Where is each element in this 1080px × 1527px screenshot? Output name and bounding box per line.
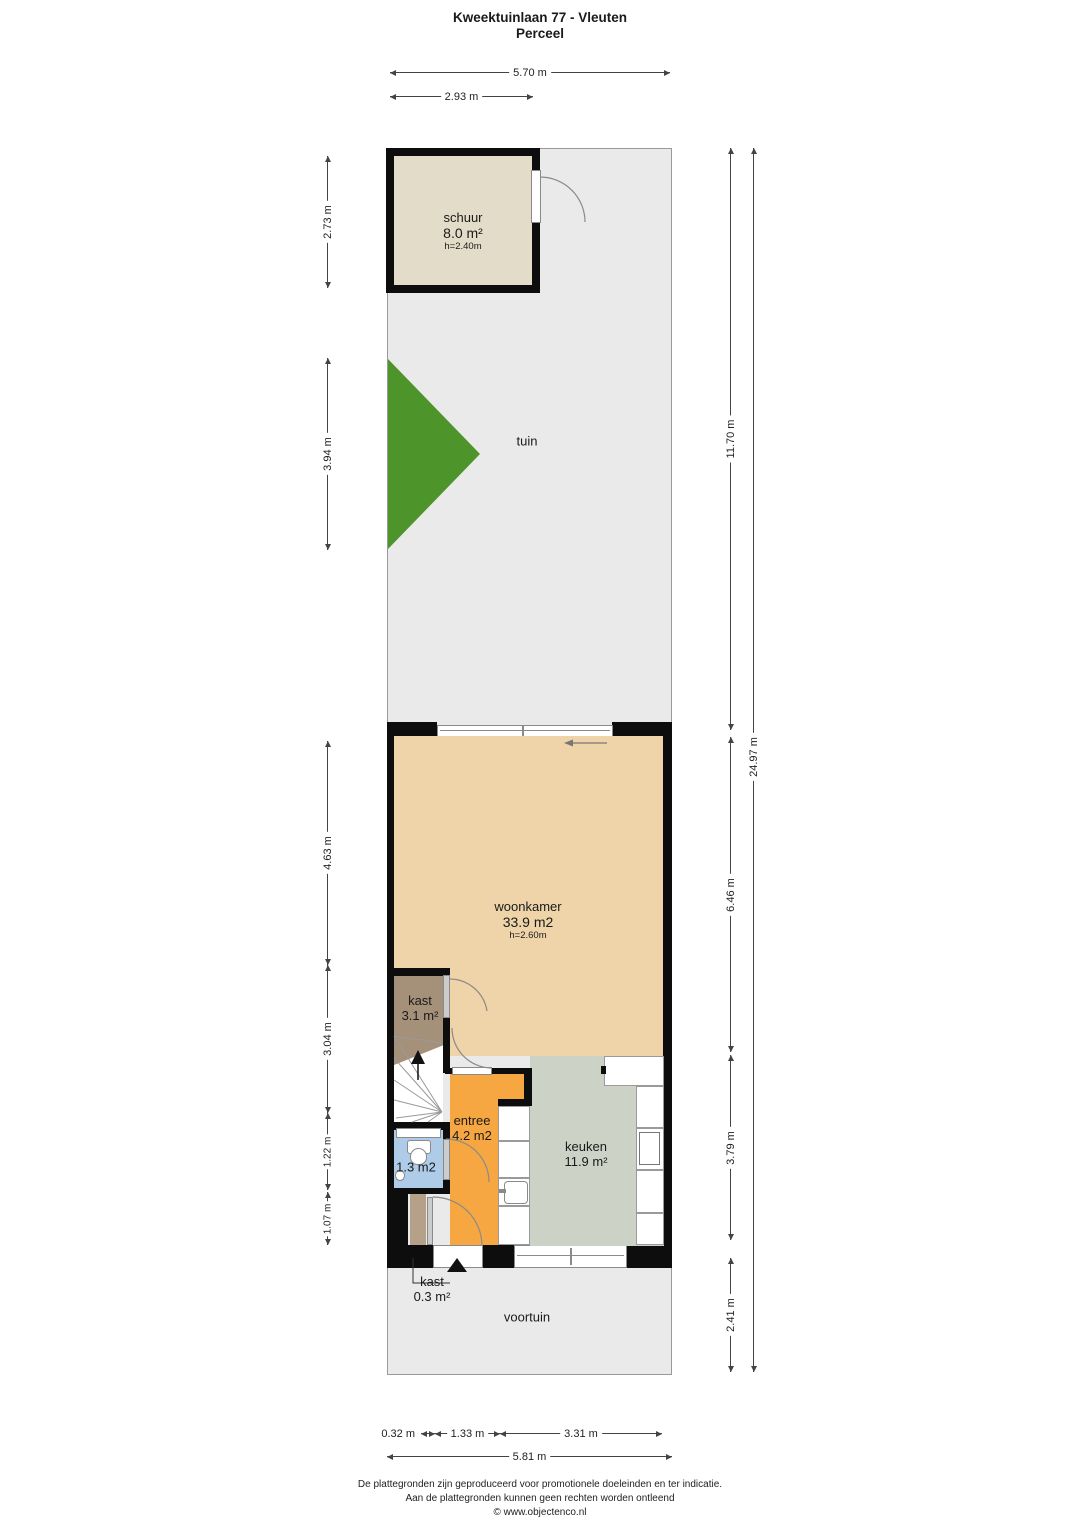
kitchen-counter-right-4 <box>636 1213 664 1245</box>
dim-left-304: 3.04 m <box>327 965 328 1113</box>
schuur-wall-top <box>386 148 540 156</box>
schuur-wall-left <box>386 148 394 293</box>
kast-onder-label: kast 0.3 m² <box>414 1274 451 1304</box>
kast-onder-floor <box>410 1194 426 1245</box>
front-door-opening <box>433 1245 483 1268</box>
kast-boven-door-opening <box>443 975 450 1018</box>
entree-area: 4.2 m2 <box>452 1128 492 1143</box>
dim-top-570: 5.70 m <box>390 72 670 73</box>
dim-right-2497: 24.97 m <box>753 148 754 1372</box>
kitchen-counter-left-3 <box>498 1206 530 1245</box>
footer-line-2: Aan de plattegronden kunnen geen rechten… <box>0 1492 1080 1506</box>
floor-plan-page: Kweektuinlaan 77 - Vleuten Perceel <box>0 0 1080 1527</box>
toilet-wall-right-b <box>443 1180 450 1194</box>
kitchen-window-post <box>570 1248 572 1265</box>
entree-label: entree 4.2 m2 <box>452 1113 492 1143</box>
woonkamer-height: h=2.60m <box>494 930 561 941</box>
sink-icon <box>504 1181 528 1204</box>
house-wall-bottom-left <box>387 1245 433 1268</box>
dim-right-241: 2.41 m <box>730 1258 731 1372</box>
entree-keuken-wall-horiz <box>498 1099 532 1106</box>
keuken-label: keuken 11.9 m² <box>564 1139 607 1169</box>
dim-top-293: 2.93 m <box>390 96 533 97</box>
kitchen-counter-left-1 <box>498 1106 530 1141</box>
dim-right-1170: 11.70 m <box>730 148 731 730</box>
dim-bottom-032: 0.32 m <box>421 1433 435 1434</box>
woonkamer-area: 33.9 m2 <box>494 914 561 930</box>
kast-boven-label: kast 3.1 m² <box>402 993 439 1023</box>
tuin-label: tuin <box>517 434 538 449</box>
schuur-height: h=2.40m <box>443 241 483 252</box>
dim-left-394: 3.94 m <box>327 358 328 550</box>
kitchen-counter-hinge <box>601 1066 606 1074</box>
dim-left-107: 1.07 m <box>327 1192 328 1245</box>
dim-bottom-581: 5.81 m <box>387 1456 672 1457</box>
sliding-door-rail <box>440 730 610 731</box>
toilet-door-opening <box>443 1139 450 1180</box>
kast-onder-name: kast <box>414 1274 451 1289</box>
footer-line-3: © www.objectenco.nl <box>0 1506 1080 1520</box>
entree-floor <box>450 1073 500 1245</box>
keuken-name: keuken <box>564 1139 607 1154</box>
footer-disclaimer: De plattegronden zijn geproduceerd voor … <box>0 1478 1080 1520</box>
kitchen-counter-right-3 <box>636 1170 664 1213</box>
toilet-area: 1.3 m2 <box>396 1160 436 1175</box>
page-title-address: Kweektuinlaan 77 - Vleuten <box>0 10 1080 26</box>
schuur-wall-bottom <box>386 285 540 293</box>
house-wall-right <box>663 722 672 1268</box>
schuur-name: schuur <box>443 210 483 225</box>
keuken-area: 11.9 m² <box>564 1154 607 1169</box>
page-title-subtitle: Perceel <box>0 26 1080 42</box>
kast-boven-wall-top <box>387 968 450 976</box>
schuur-wall-right-lower <box>532 223 540 293</box>
house-wall-bottom-mid <box>483 1245 514 1268</box>
toilet-wall-bottom <box>387 1188 450 1194</box>
dim-left-273: 2.73 m <box>327 156 328 288</box>
toilet-wall-right-a <box>443 1122 450 1139</box>
kast-boven-wall-right-a <box>443 968 450 975</box>
dim-bottom-331: 3.31 m <box>500 1433 662 1434</box>
toilet-shelf <box>396 1128 441 1138</box>
dim-left-122: 1.22 m <box>327 1113 328 1190</box>
woonkamer-name: woonkamer <box>494 899 561 914</box>
front-door-leaf <box>427 1197 433 1245</box>
entree-name: entree <box>452 1113 492 1128</box>
footer-line-1: De plattegronden zijn geproduceerd voor … <box>0 1478 1080 1492</box>
page-title: Kweektuinlaan 77 - Vleuten Perceel <box>0 10 1080 42</box>
kast-boven-name: kast <box>402 993 439 1008</box>
dim-left-463: 4.63 m <box>327 741 328 965</box>
toilet-label: 1.3 m2 <box>396 1160 436 1175</box>
kast-onder-area: 0.3 m² <box>414 1289 451 1304</box>
sink-tap-icon <box>499 1189 506 1193</box>
schuur-area: 8.0 m² <box>443 225 483 241</box>
woonkamer-label: woonkamer 33.9 m2 h=2.60m <box>494 899 561 941</box>
sliding-door-handle <box>522 726 524 736</box>
woonkamer-entree-door-opening <box>452 1067 492 1075</box>
kast-boven-area: 3.1 m² <box>402 1008 439 1023</box>
dim-right-379: 3.79 m <box>730 1055 731 1240</box>
house-wall-left <box>387 722 394 1268</box>
kast-onder-dark-block <box>394 1194 408 1245</box>
dim-right-646: 6.46 m <box>730 737 731 1052</box>
schuur-label: schuur 8.0 m² h=2.40m <box>443 210 483 252</box>
dim-bottom-133: 1.33 m <box>435 1433 500 1434</box>
voortuin-label: voortuin <box>504 1310 550 1325</box>
kitchen-counter-left-2 <box>498 1141 530 1178</box>
schuur-wall-right-upper <box>532 148 540 171</box>
stove-icon <box>639 1132 660 1165</box>
house-wall-bottom-right <box>627 1245 672 1268</box>
kitchen-counter-top <box>604 1056 664 1086</box>
kitchen-counter-right-1 <box>636 1086 664 1128</box>
schuur-door-opening <box>531 170 541 223</box>
kast-boven-wall-right-b <box>443 1018 450 1073</box>
